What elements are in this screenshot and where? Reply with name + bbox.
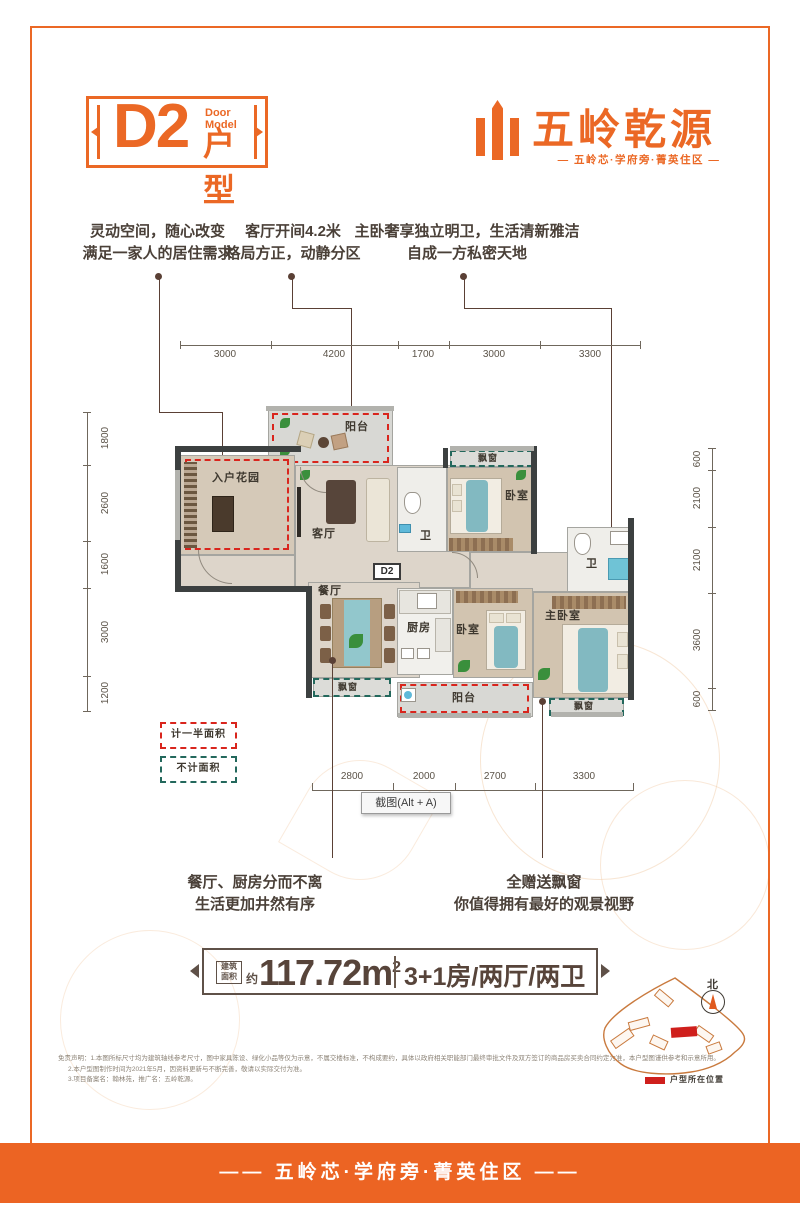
area-approx: 约 [246,970,258,987]
tea-table [326,480,356,524]
room-label-master-bedroom: 主卧室 [545,610,581,623]
dim-tick [535,783,536,791]
window-strip [398,713,531,718]
screenshot-tooltip[interactable]: 截图(Alt + A) [361,792,451,814]
compass-icon [701,990,725,1014]
bed-pillow [617,654,628,669]
dining-chair [384,604,395,619]
room-label-bay-window-left: 飘窗 [338,682,358,693]
dim-label-left: 3000 [100,610,112,654]
dim-tick [449,341,450,349]
callout-line [159,412,223,413]
window-strip [551,712,623,717]
wardrobe [552,596,626,609]
stove [417,593,437,609]
dim-label-bottom: 2800 [330,771,374,783]
room-label-bath-1: 卫 [420,530,432,543]
dim-tick [640,341,641,349]
dim-line-right [712,448,713,711]
dim-tick [271,341,272,349]
plant [458,660,470,672]
callout-bottom-2-line2: 你值得拥有最好的观景视野 [434,894,654,916]
bed-pillow [452,500,462,512]
dim-label-bottom: 2700 [473,771,517,783]
footer-bar: —— 五岭芯·学府旁·菁英住区 —— [0,1143,800,1203]
dim-line-top [180,345,641,346]
window-strip [266,406,394,411]
watermark-floral [600,780,770,950]
callout-line [464,277,465,309]
site-map-drawing [595,972,760,1090]
dim-tick [633,783,634,791]
summary-left-cap [190,964,199,978]
callout-top-3-line1: 主卧奢享独立明卫，生活清新雅洁 [347,221,587,243]
disclaimer-line: 免责声明：1.本图所标尺寸均为建筑轴线参考尺寸，图中家具陈设、绿化小品等仅为示意… [58,1054,678,1065]
dim-tick [398,341,399,349]
callout-bottom-2-line1: 全赠送飘窗 [434,872,654,894]
callout-line [292,308,352,309]
corridor-floor [470,552,568,592]
dim-label-right: 2100 [692,476,704,520]
washbasin [399,524,411,533]
dim-label-right: 600 [692,677,704,721]
dim-tick [312,783,313,791]
dim-label-top: 3000 [472,349,516,361]
sofa [366,478,390,542]
area-unit-line1: 建筑 [217,962,241,972]
legend-half-area: 计一半面积 [160,722,237,749]
legend-excluded-area: 不计面积 [160,756,237,783]
callout-bottom-1: 餐厅、厨房分而不离 生活更加井然有序 [165,872,345,916]
brand-icon-left-bar [476,118,485,156]
dim-tick [455,783,456,791]
model-code: D2 [113,91,188,162]
wall-segment [628,518,634,700]
wardrobe [449,538,513,551]
dim-tick [540,341,541,349]
callout-line [159,277,160,413]
shower [610,531,629,545]
dim-label-right: 600 [692,437,704,481]
dim-label-bottom: 2000 [402,771,446,783]
room-label-bath-2: 卫 [586,558,598,571]
dining-runner [344,600,370,666]
callout-bottom-2: 全赠送飘窗 你值得拥有最好的观景视野 [434,872,654,916]
dim-tick [708,593,716,594]
brand-logo-icon [468,96,526,164]
hall-floor [178,555,295,588]
disclaimer-line: 3.项目备案名：翰林苑，推广名：五岭乾源。 [58,1075,678,1086]
washing-machine-door [404,691,412,699]
room-label-bay-window-right: 飘窗 [574,701,594,712]
dim-tick [708,527,716,528]
room-label-balcony-top: 阳台 [345,421,369,434]
callout-line [542,704,543,858]
callout-bottom-1-line2: 生活更加井然有序 [165,894,345,916]
layout-text: 3+1房/两厅/两卫 [404,957,585,993]
callout-top-3: 主卧奢享独立明卫，生活清新雅洁 自成一方私密天地 [347,221,587,265]
entry-cabinet [184,462,197,548]
site-building-highlighted [671,1026,698,1038]
dim-label-top: 3000 [203,349,247,361]
balcony-table [318,437,329,448]
dim-tick [708,448,716,449]
legend-half-area-label: 计一半面积 [171,729,226,740]
plant [538,668,550,680]
plant [349,634,363,648]
wall-segment [443,448,448,468]
dim-tick [83,541,91,542]
dim-tick [708,710,716,711]
dining-chair [320,604,331,619]
area-value-number: 117.72m [259,952,392,993]
logo-left-arrow [91,127,98,137]
room-label-entry-garden: 入户花园 [212,472,260,485]
bed-pillow [617,632,628,647]
bathtub [608,558,630,580]
toilet [574,533,591,555]
site-building [611,1028,634,1048]
site-boundary [604,978,745,1074]
unit-badge: D2 [373,563,401,580]
summary-divider [394,956,396,988]
bed-pillow [489,613,504,623]
callout-top-3-line2: 自成一方私密天地 [347,243,587,265]
area-value: 117.72m2 [259,952,400,994]
kitchen-sink [401,648,414,659]
dim-label-top: 1700 [401,349,445,361]
kitchen-counter [435,618,451,652]
wall-segment [175,446,301,452]
bed-pillow [452,484,462,496]
dining-chair [320,626,331,641]
frame-left-line [30,26,32,1143]
site-building [655,989,674,1007]
compass-needle [709,994,717,1009]
callout-bottom-1-line1: 餐厅、厨房分而不离 [165,872,345,894]
footer-tagline: —— 五岭芯·学府旁·菁英住区 —— [0,1143,800,1203]
legend-excluded-area-label: 不计面积 [177,763,221,774]
bed-pillow [506,613,521,623]
plant [516,470,526,480]
dim-tick [393,783,394,791]
dining-chair [384,626,395,641]
dim-label-left: 2600 [100,481,112,525]
room-label-dining: 餐厅 [318,585,342,598]
wall-segment [175,586,310,592]
dim-tick [708,470,716,471]
poster-page: D2 Door Model 户型 五岭乾源 — 五岭芯·学府旁·菁英住区 — 灵… [0,0,800,1216]
dim-label-bottom: 3300 [562,771,606,783]
dim-label-top: 3300 [568,349,612,361]
dim-tick [83,465,91,466]
brand-icon-right-bar [510,118,519,156]
dim-label-top: 4200 [312,349,356,361]
window-strip [450,446,534,451]
kitchen-sink [417,648,430,659]
site-map [595,972,760,1090]
model-logo-box: D2 Door Model 户型 [86,96,268,168]
dim-line-left [87,412,88,712]
dim-line-bottom [312,790,634,791]
site-building [628,1018,649,1031]
area-unit-box: 建筑 面积 [216,961,242,984]
dim-label-left: 1800 [100,416,112,460]
room-label-kitchen: 厨房 [407,622,431,635]
bed-blanket [494,626,518,668]
room-label-bedroom-2: 卧室 [456,624,480,637]
dim-tick [83,676,91,677]
dim-label-right: 2100 [692,538,704,582]
entry-desk [212,496,234,532]
bed-blanket [466,480,488,532]
screenshot-tooltip-label: 截图(Alt + A) [375,797,436,809]
room-label-bedroom-1: 卧室 [505,490,529,503]
site-building [650,1035,668,1050]
disclaimer-line: 2.本户型图制作时间为2021年5月，因资料更新与不断完善，敬请以实际交付为准。 [58,1065,678,1076]
brand-tagline: — 五岭芯·学府旁·菁英住区 — [524,152,754,167]
wall-segment [531,446,537,554]
wall-segment [306,586,312,698]
window-strip [175,470,180,540]
site-legend-swatch [645,1077,665,1084]
room-label-living: 客厅 [312,528,336,541]
site-building [706,1042,722,1054]
bed-blanket [578,628,608,692]
plant [280,418,290,428]
frame-top-line [30,26,770,28]
callout-line [292,277,293,309]
toilet [404,492,421,514]
dim-tick [83,588,91,589]
area-summary-box: 建筑 面积 约 117.72m2 3+1房/两厅/两卫 [202,948,598,995]
dim-tick [180,341,181,349]
dim-tick [708,688,716,689]
dim-label-left: 1200 [100,671,112,715]
room-label-bay-window-top: 飘窗 [478,453,498,464]
site-building [694,1026,713,1043]
brand-icon-center-bar [492,100,503,160]
dining-chair [384,648,395,663]
wardrobe [456,591,518,603]
dim-tick [83,711,91,712]
dim-label-left: 1600 [100,542,112,586]
dim-label-right: 3600 [692,618,704,662]
room-label-balcony-bottom: 阳台 [452,692,476,705]
balcony-chair [331,433,349,451]
frame-right-line [768,26,770,1143]
callout-line [332,662,333,858]
disclaimer-block: 免责声明：1.本图所标尺寸均为建筑轴线参考尺寸，图中家具陈设、绿化小品等仅为示意… [58,1054,678,1086]
dim-tick [83,412,91,413]
tv [297,487,301,537]
unit-badge-label: D2 [381,566,394,577]
brand-name: 五岭乾源 [532,96,716,157]
model-label-cn: 户型 [203,119,265,211]
callout-line [464,308,612,309]
site-legend-label: 户型所在位置 [670,1074,724,1085]
area-unit-line2: 面积 [217,972,241,982]
